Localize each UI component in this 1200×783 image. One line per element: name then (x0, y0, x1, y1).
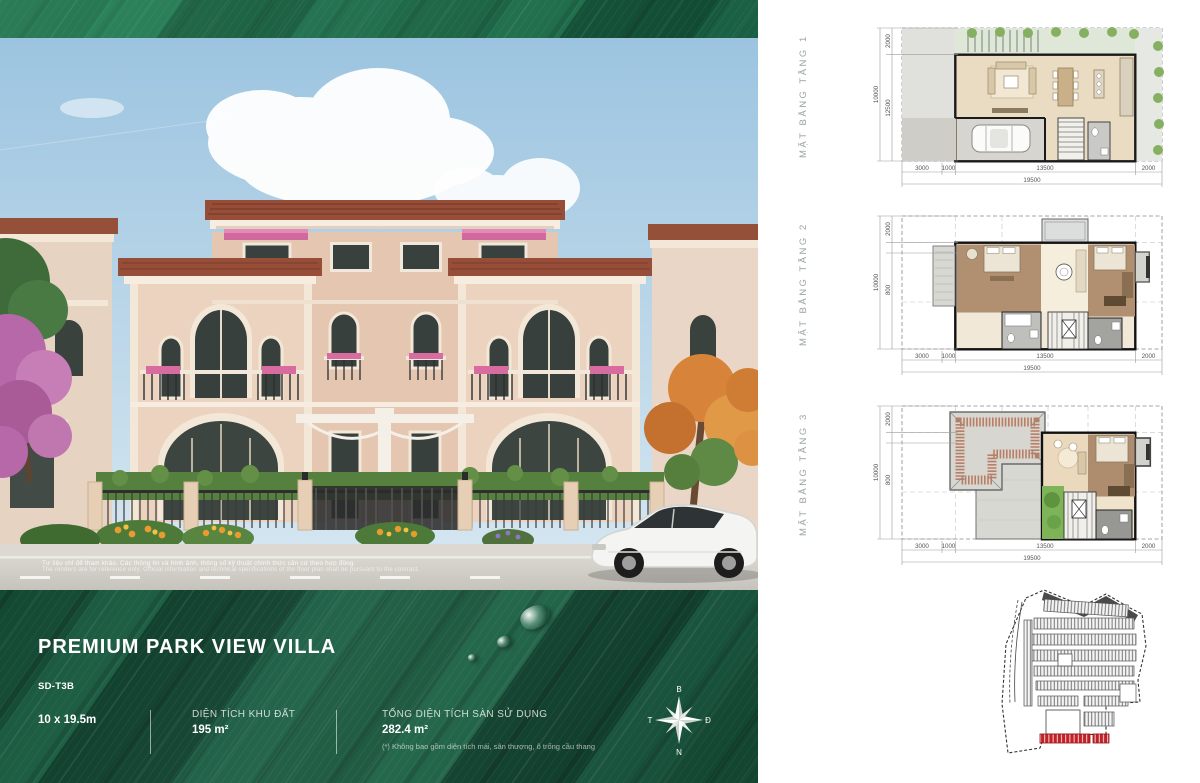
lot-blocks (1024, 599, 1136, 726)
floor-area-block: TỔNG DIỆN TÍCH SÀN SỬ DỤNG 282.4 m² (*) … (382, 709, 595, 751)
highlighted-row (1040, 734, 1109, 743)
dim-bottom-total: 19500 (1023, 555, 1041, 562)
floor-area-value: 282.4 m² (382, 724, 595, 736)
stairs (1064, 492, 1096, 539)
dim-bottom-3: 13500 (1036, 543, 1054, 550)
bathroom-3 (1096, 510, 1132, 539)
car-top-view (972, 125, 1030, 152)
floor-area-label: TỔNG DIỆN TÍCH SÀN SỬ DỤNG (382, 709, 595, 720)
washer (1056, 264, 1072, 280)
garden-patch (1042, 486, 1064, 539)
dim-bottom-4: 2000 (1142, 543, 1156, 550)
dim-left-outer: 10000 (873, 85, 880, 103)
floor-plan-2-label: MẶT BẰNG TẦNG 2 (798, 214, 822, 354)
site-plan-drawing (988, 584, 1163, 764)
dim-bottom-1: 3000 (915, 165, 929, 172)
stairs (1048, 312, 1088, 349)
dim-bottom-3: 13500 (1036, 165, 1054, 172)
dim-bottom-3: 13500 (1036, 353, 1054, 360)
floor-plan-1: MẶT BẰNG TẦNG 1 (798, 22, 1172, 194)
floor-plan-3-label: MẶT BẰNG TẦNG 3 (798, 404, 822, 544)
leaf-top-band (0, 0, 758, 38)
dim-bottom-2: 1000 (942, 165, 956, 172)
compass-west-label: T (648, 716, 653, 725)
floor-area-note: (*) Không bao gồm diện tích mái, sân thư… (382, 742, 595, 751)
dim-left-outer: 10000 (873, 463, 880, 481)
bedroom-3 (1088, 435, 1135, 497)
compass-north-label: B (676, 685, 681, 694)
dim-left-top: 2000 (885, 222, 892, 236)
brochure-page: { "colors": { "leaf_green": "#145238", "… (0, 0, 1200, 783)
family-room (1044, 435, 1088, 491)
dim-bottom-total: 19500 (1023, 177, 1041, 184)
divider-2 (336, 710, 337, 754)
dim-left-mid: 800 (885, 474, 892, 485)
dim-bottom-4: 2000 (1142, 165, 1156, 172)
dim-bottom-1: 3000 (915, 543, 929, 550)
dim-left-top: 2000 (885, 412, 892, 426)
dim-left-outer: 10000 (873, 273, 880, 291)
compass-south-label: N (676, 748, 682, 757)
villa-photo-svg (0, 38, 758, 590)
dim-bottom-1: 3000 (915, 353, 929, 360)
land-area-value: 195 m² (192, 724, 295, 736)
dim-bottom-2: 1000 (942, 543, 956, 550)
dim-left-top: 2000 (885, 34, 892, 48)
page-title: PREMIUM PARK VIEW VILLA (38, 636, 336, 659)
lot-size: 10 x 19.5m (38, 714, 96, 726)
divider-1 (150, 710, 151, 754)
west-road (1010, 600, 1022, 704)
stairs (1058, 118, 1084, 160)
floor-plan-2: MẶT BẰNG TẦNG 2 (798, 210, 1172, 382)
floor-plan-3: MẶT BẰNG TẦNG 3 (798, 400, 1172, 572)
floor-plan-1-label: MẶT BẰNG TẦNG 1 (798, 26, 822, 166)
dim-bottom-2: 1000 (942, 353, 956, 360)
compass-rose: B N T Đ (644, 683, 714, 762)
dim-left-mid: 800 (885, 284, 892, 295)
canopy (1042, 219, 1088, 243)
disclaimer-vi: Tư liệu chỉ để tham khảo. Các thông tin … (42, 560, 602, 567)
land-area-block: DIỆN TÍCH KHU ĐẤT 195 m² (192, 709, 295, 736)
bathroom-2 (1088, 318, 1122, 349)
villa-code: SD-T3B (38, 681, 74, 692)
bathroom (1088, 122, 1110, 160)
large-lot (1046, 710, 1080, 734)
floor-plan-1-drawing: 10000 2000 12500 3000 1000 13500 2000 19… (872, 22, 1172, 194)
villa-photo (0, 38, 758, 590)
floor-plan-2-drawing: 10000 2000 800 3000 1000 13500 2000 1950… (872, 210, 1172, 382)
dim-left-mid: 12500 (885, 99, 892, 117)
land-area-label: DIỆN TÍCH KHU ĐẤT (192, 709, 295, 720)
dim-bottom-4: 2000 (1142, 353, 1156, 360)
compass-east-label: Đ (705, 716, 711, 725)
floor-plan-3-drawing: 10000 2000 800 3000 1000 13500 2000 1950… (872, 400, 1172, 572)
bathroom-1 (1002, 312, 1041, 349)
photo-disclaimer: Tư liệu chỉ để tham khảo. Các thông tin … (42, 560, 602, 575)
dim-bottom-total: 19500 (1023, 365, 1041, 372)
villa-top-roof (205, 200, 565, 229)
master-site-plan (988, 584, 1163, 769)
compass-icon: B N T Đ (644, 683, 714, 757)
disclaimer-en: The renders are for reference only. Offi… (42, 567, 602, 574)
